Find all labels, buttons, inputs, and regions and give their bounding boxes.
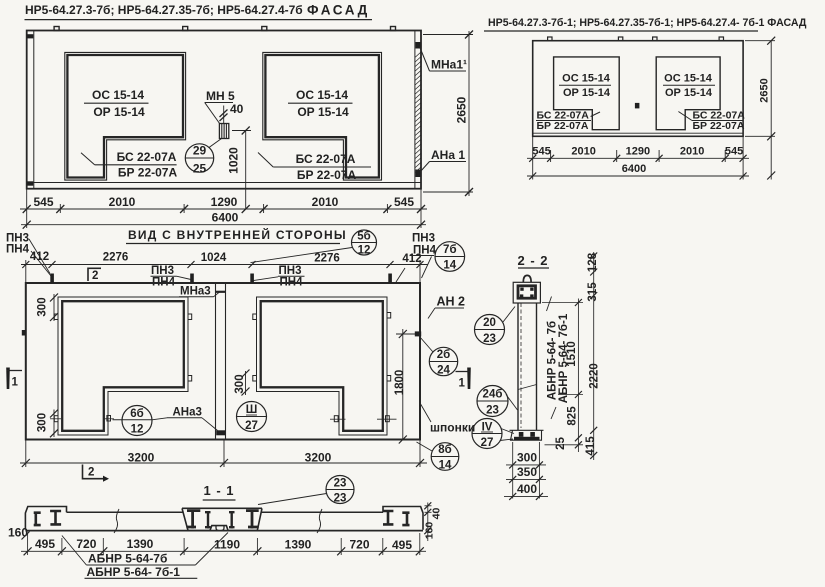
svg-text:3200: 3200 (128, 451, 155, 465)
svg-text:АБНР 5-64-7б: АБНР 5-64-7б (88, 552, 167, 566)
svg-text:1: 1 (459, 378, 466, 390)
svg-text:БР 22-07А: БР 22-07А (297, 168, 357, 182)
svg-text:1: 1 (12, 377, 19, 389)
svg-text:2220: 2220 (589, 363, 601, 389)
svg-text:ФАСАД: ФАСАД (307, 3, 370, 18)
svg-text:825: 825 (567, 406, 579, 426)
svg-text:23: 23 (334, 493, 347, 505)
svg-text:350: 350 (517, 465, 537, 479)
svg-text:АБНР 5-64- 7б-1: АБНР 5-64- 7б-1 (87, 565, 181, 579)
svg-text:ОС 15-14: ОС 15-14 (296, 88, 348, 102)
svg-text:3200: 3200 (305, 451, 332, 465)
svg-text:шпонки: шпонки (430, 421, 475, 435)
svg-text:27: 27 (245, 420, 258, 432)
svg-text:23: 23 (334, 478, 347, 490)
svg-text:1290: 1290 (211, 195, 238, 209)
svg-text:315: 315 (587, 282, 599, 302)
svg-text:2010: 2010 (109, 195, 136, 209)
svg-text:1024: 1024 (201, 252, 227, 264)
svg-text:25: 25 (193, 162, 207, 176)
svg-text:1290: 1290 (626, 146, 650, 158)
svg-text:495: 495 (35, 537, 55, 551)
svg-text:ОР 15-14: ОР 15-14 (563, 87, 611, 99)
svg-text:300: 300 (234, 374, 246, 393)
svg-text:6б: 6б (130, 408, 144, 420)
svg-text:ВИД С ВНУТРЕННЕЙ СТОРОНЫ: ВИД С ВНУТРЕННЕЙ СТОРОНЫ (128, 227, 347, 242)
svg-text:545: 545 (394, 195, 414, 209)
svg-text:НР5-64.27.3-7б; НР5-64.27.35-7: НР5-64.27.3-7б; НР5-64.27.35-7б; НР5-64.… (25, 3, 303, 17)
svg-text:545: 545 (33, 195, 53, 209)
svg-text:БР 22-07А: БР 22-07А (537, 120, 589, 132)
svg-text:ПН3: ПН3 (279, 265, 302, 277)
svg-text:1 - 1: 1 - 1 (203, 483, 234, 498)
svg-text:ОР 15-14: ОР 15-14 (93, 105, 145, 119)
svg-text:ОС 15-14: ОС 15-14 (562, 73, 611, 85)
svg-text:2650: 2650 (759, 78, 771, 102)
svg-text:495: 495 (392, 538, 412, 552)
svg-text:1390: 1390 (285, 538, 312, 552)
svg-text:АН 2: АН 2 (437, 295, 466, 309)
svg-text:АНа 1: АНа 1 (431, 148, 465, 162)
svg-text:23: 23 (486, 405, 499, 417)
svg-text:27: 27 (481, 437, 494, 449)
svg-text:720: 720 (349, 538, 369, 552)
svg-text:АНа3: АНа3 (173, 407, 202, 419)
svg-text:ПН3: ПН3 (412, 233, 435, 245)
svg-text:14: 14 (443, 260, 456, 272)
svg-text:1390: 1390 (127, 537, 154, 551)
svg-text:400: 400 (517, 482, 537, 496)
svg-text:24б: 24б (483, 389, 503, 401)
svg-text:2650: 2650 (455, 96, 469, 123)
svg-text:1510: 1510 (566, 341, 578, 367)
svg-text:ПН4: ПН4 (413, 245, 437, 257)
svg-text:2: 2 (88, 467, 94, 479)
svg-text:1020: 1020 (227, 147, 241, 174)
svg-text:29: 29 (193, 144, 207, 158)
svg-text:6400: 6400 (212, 211, 239, 225)
svg-text:1190: 1190 (214, 538, 240, 552)
svg-text:2010: 2010 (312, 195, 339, 209)
svg-text:ОС 15-14: ОС 15-14 (92, 88, 144, 102)
svg-text:2010: 2010 (571, 146, 595, 158)
svg-text:20: 20 (483, 317, 496, 329)
svg-text:300: 300 (517, 451, 537, 465)
svg-text:АБНР 5-64- 7б: АБНР 5-64- 7б (547, 321, 559, 400)
svg-text:40: 40 (431, 508, 443, 520)
svg-text:300: 300 (37, 413, 49, 432)
svg-text:2276: 2276 (314, 253, 340, 265)
svg-text:8б: 8б (438, 444, 452, 456)
svg-text:НР5-64.27.3-7б-1; НР5-64.27.35: НР5-64.27.3-7б-1; НР5-64.27.35-7б-1; НР5… (488, 17, 807, 29)
svg-text:2 - 2: 2 - 2 (517, 253, 548, 268)
svg-text:6400: 6400 (622, 163, 646, 175)
svg-text:160: 160 (424, 522, 436, 540)
svg-text:ПН4: ПН4 (6, 244, 30, 256)
svg-text:БР 22-07А: БР 22-07А (118, 166, 178, 180)
svg-text:1800: 1800 (394, 370, 406, 396)
svg-text:23: 23 (483, 333, 496, 345)
svg-text:МН 5: МН 5 (206, 89, 235, 103)
svg-text:300: 300 (37, 297, 49, 316)
svg-text:МНа1¹: МНа1¹ (431, 58, 467, 72)
svg-text:2010: 2010 (680, 146, 704, 158)
svg-text:ОС 15-14: ОС 15-14 (664, 73, 713, 85)
svg-text:5б: 5б (357, 231, 371, 243)
svg-text:40: 40 (230, 102, 244, 116)
svg-text:12: 12 (358, 245, 371, 257)
svg-text:2б: 2б (437, 349, 451, 361)
svg-text:БР 22-07А: БР 22-07А (693, 120, 745, 132)
svg-text:2: 2 (92, 270, 98, 282)
svg-text:БС 22-07А: БС 22-07А (117, 150, 177, 164)
svg-text:24: 24 (437, 365, 450, 377)
svg-text:160: 160 (8, 526, 28, 540)
svg-text:ОР 15-14: ОР 15-14 (297, 105, 349, 119)
svg-text:720: 720 (76, 537, 96, 551)
svg-text:Ш: Ш (246, 404, 258, 416)
svg-text:25: 25 (555, 437, 567, 450)
svg-text:2276: 2276 (103, 252, 129, 264)
svg-text:7б: 7б (443, 244, 457, 256)
svg-text:415: 415 (585, 436, 597, 456)
svg-text:ОР 15-14: ОР 15-14 (665, 87, 713, 99)
svg-text:МНа3: МНа3 (180, 286, 211, 298)
svg-text:14: 14 (439, 460, 452, 472)
svg-text:ПН3: ПН3 (151, 265, 174, 277)
svg-text:БС 22-07А: БС 22-07А (296, 152, 356, 166)
svg-text:12: 12 (131, 424, 144, 436)
